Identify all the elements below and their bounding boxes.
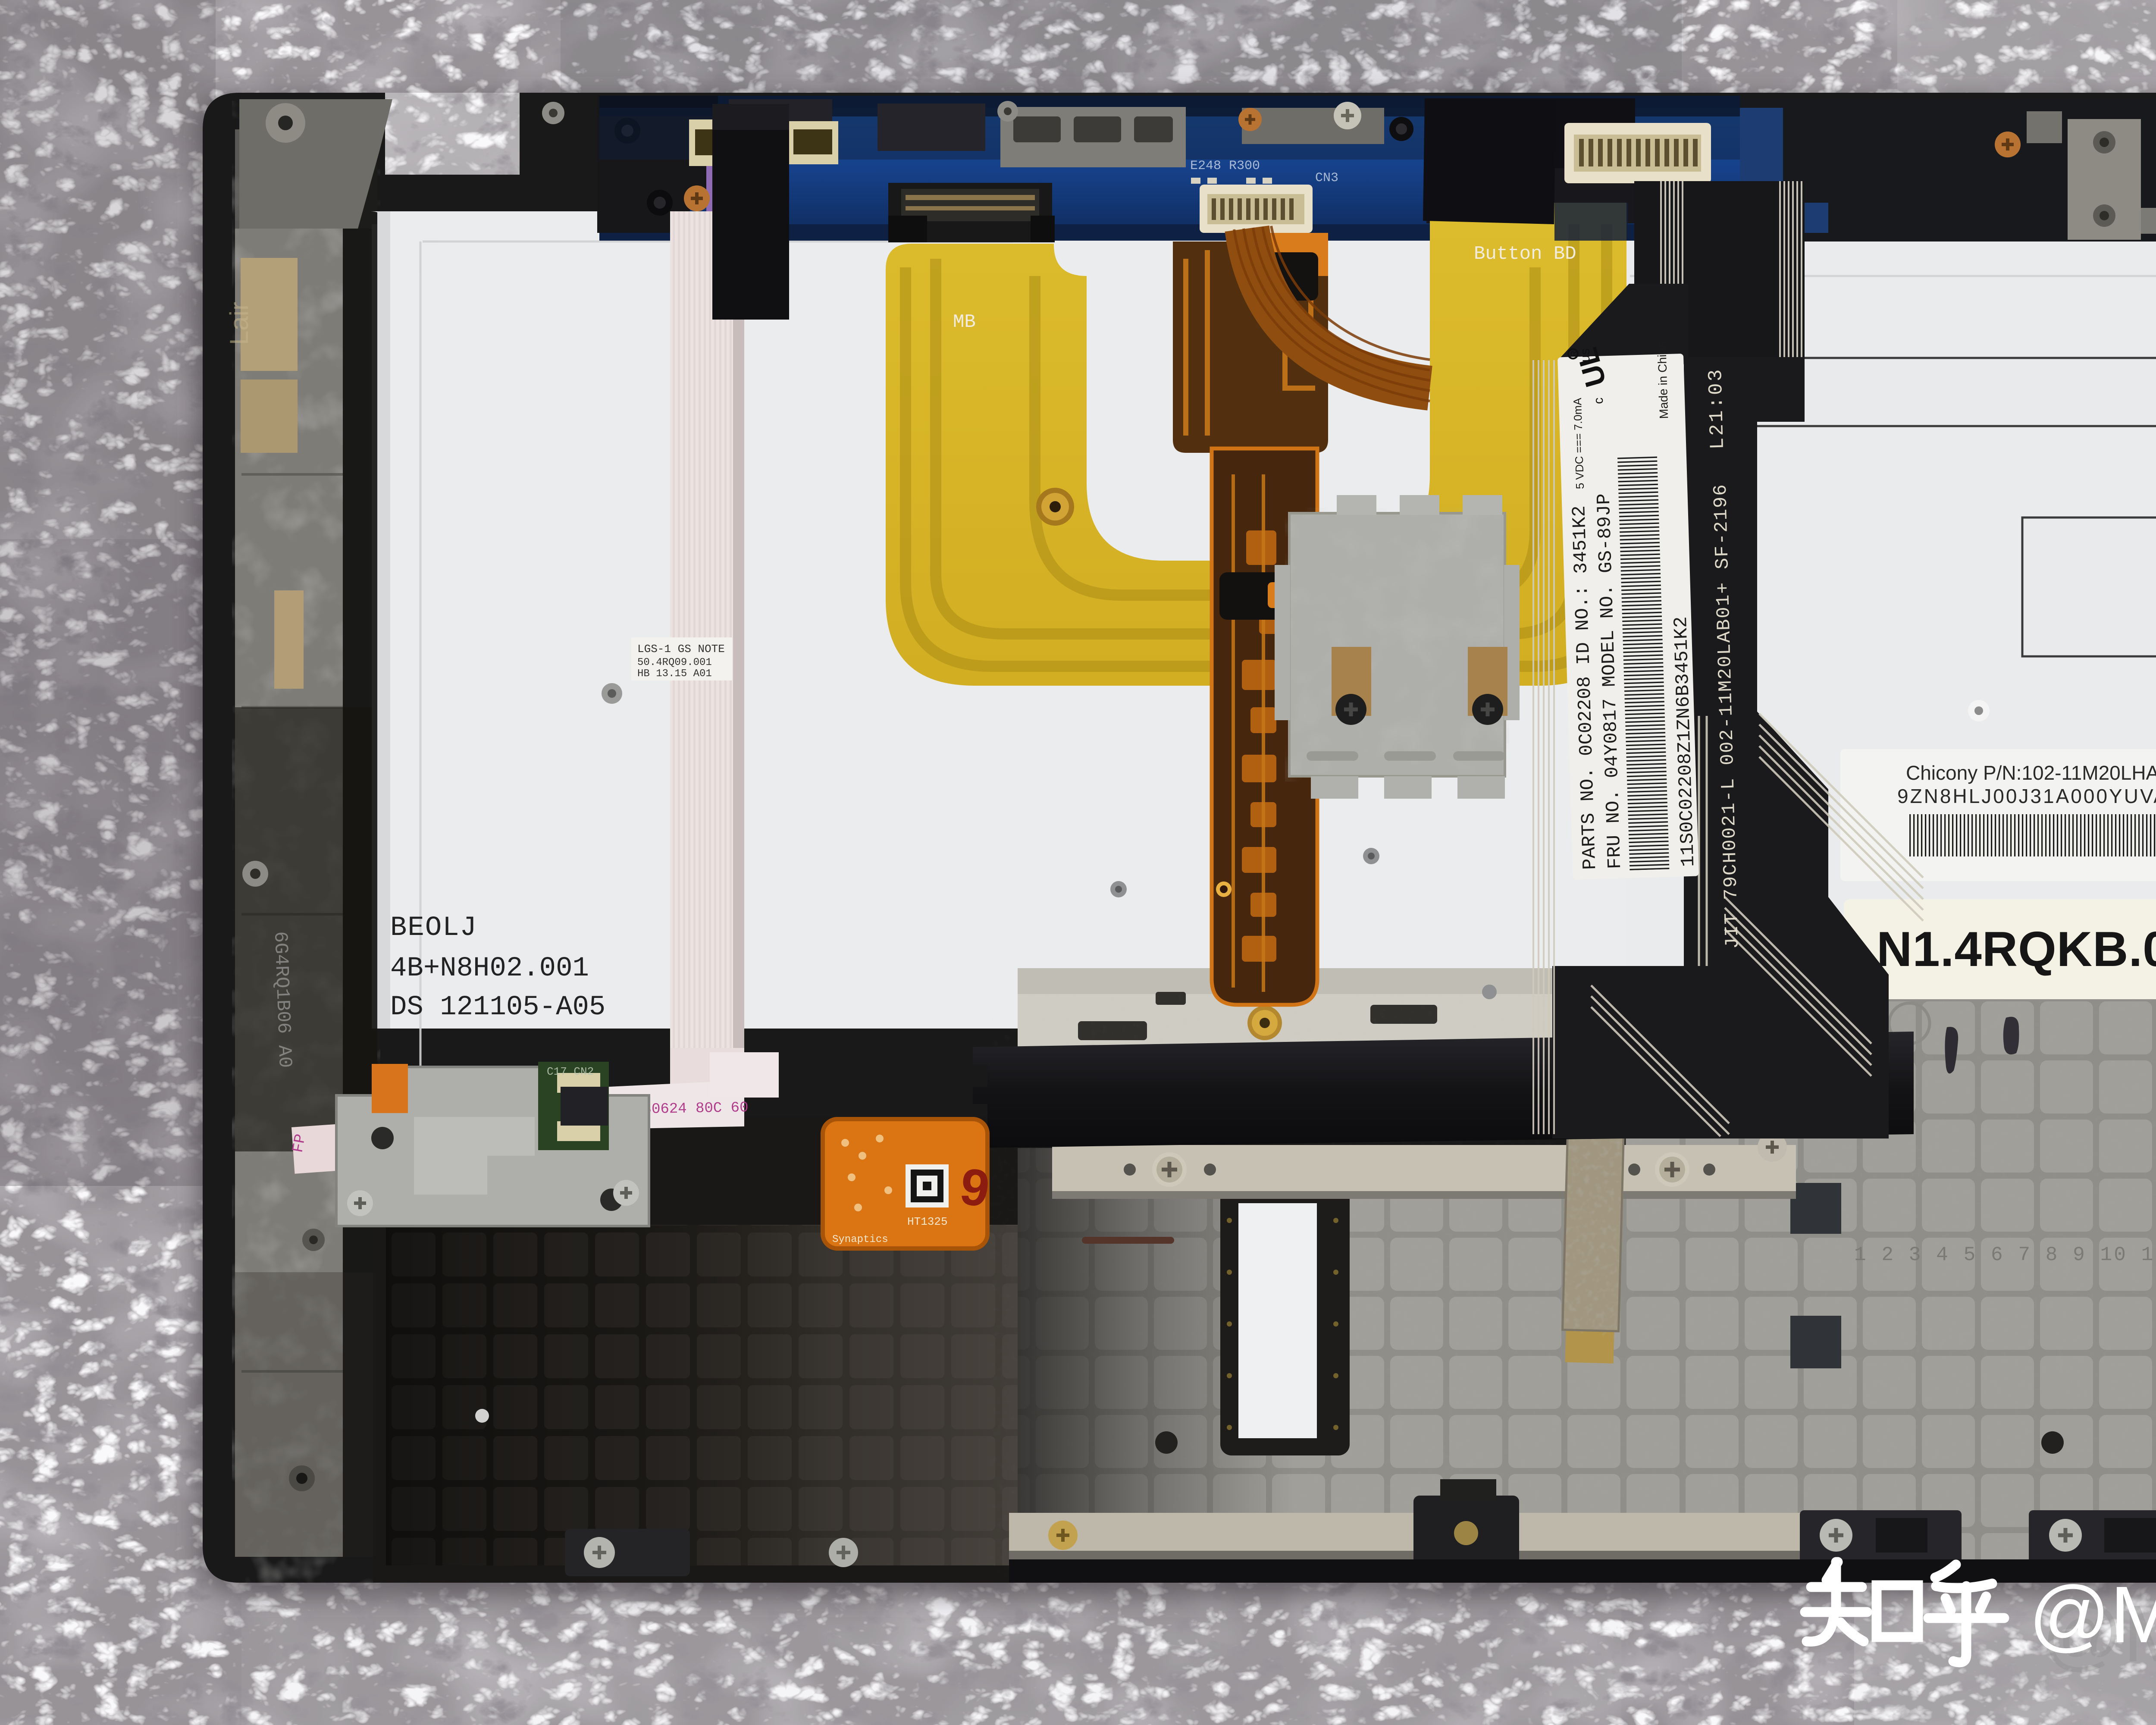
svg-text:N1.4RQKB.065: N1.4RQKB.065 <box>1877 922 2156 977</box>
svg-text:9ZN8HLJ00J31A000YUVA: 9ZN8HLJ00J31A000YUVA <box>1897 785 2156 807</box>
svg-text:C17 CN2: C17 CN2 <box>547 1065 594 1078</box>
svg-text:Button BD: Button BD <box>1474 243 1576 265</box>
svg-text:HT1325: HT1325 <box>907 1215 948 1228</box>
svg-text:Made in China: Made in China <box>1655 341 1670 419</box>
svg-text:HB 13.15 A01: HB 13.15 A01 <box>637 668 712 680</box>
svg-text:5 VDC === 7.0mA: 5 VDC === 7.0mA <box>1571 397 1586 489</box>
svg-text:DS 121105-A05: DS 121105-A05 <box>390 992 605 1023</box>
svg-text:CN3: CN3 <box>1315 171 1338 185</box>
svg-text:@Mation Wang: @Mation Wang <box>2029 1570 2156 1659</box>
svg-text:E248 R300: E248 R300 <box>1190 159 1260 173</box>
svg-text:BEOLJ: BEOLJ <box>390 913 477 944</box>
svg-text:4B+N8H02.001: 4B+N8H02.001 <box>390 953 589 984</box>
svg-text:1 2 3 4 5 6 7 8 9 10 11 12: 1 2 3 4 5 6 7 8 9 10 11 12 <box>1854 1244 2156 1266</box>
svg-text:LGS-1 GS NOTE: LGS-1 GS NOTE <box>637 643 725 655</box>
svg-text:Lair: Lair <box>225 302 254 345</box>
svg-text:50.4RQ09.001: 50.4RQ09.001 <box>637 657 712 668</box>
svg-text:Synaptics: Synaptics <box>832 1234 888 1245</box>
svg-text:Chicony P/N:102-11M20LHA01: Chicony P/N:102-11M20LHA01 <box>1906 762 2156 784</box>
svg-text:MB: MB <box>953 311 976 333</box>
svg-text:R: R <box>1570 351 1579 357</box>
svg-text:c: c <box>1592 397 1606 404</box>
svg-text:FP: FP <box>289 1132 310 1154</box>
svg-text:L21:03: L21:03 <box>1705 367 1729 450</box>
svg-text:us: us <box>1578 348 1592 362</box>
